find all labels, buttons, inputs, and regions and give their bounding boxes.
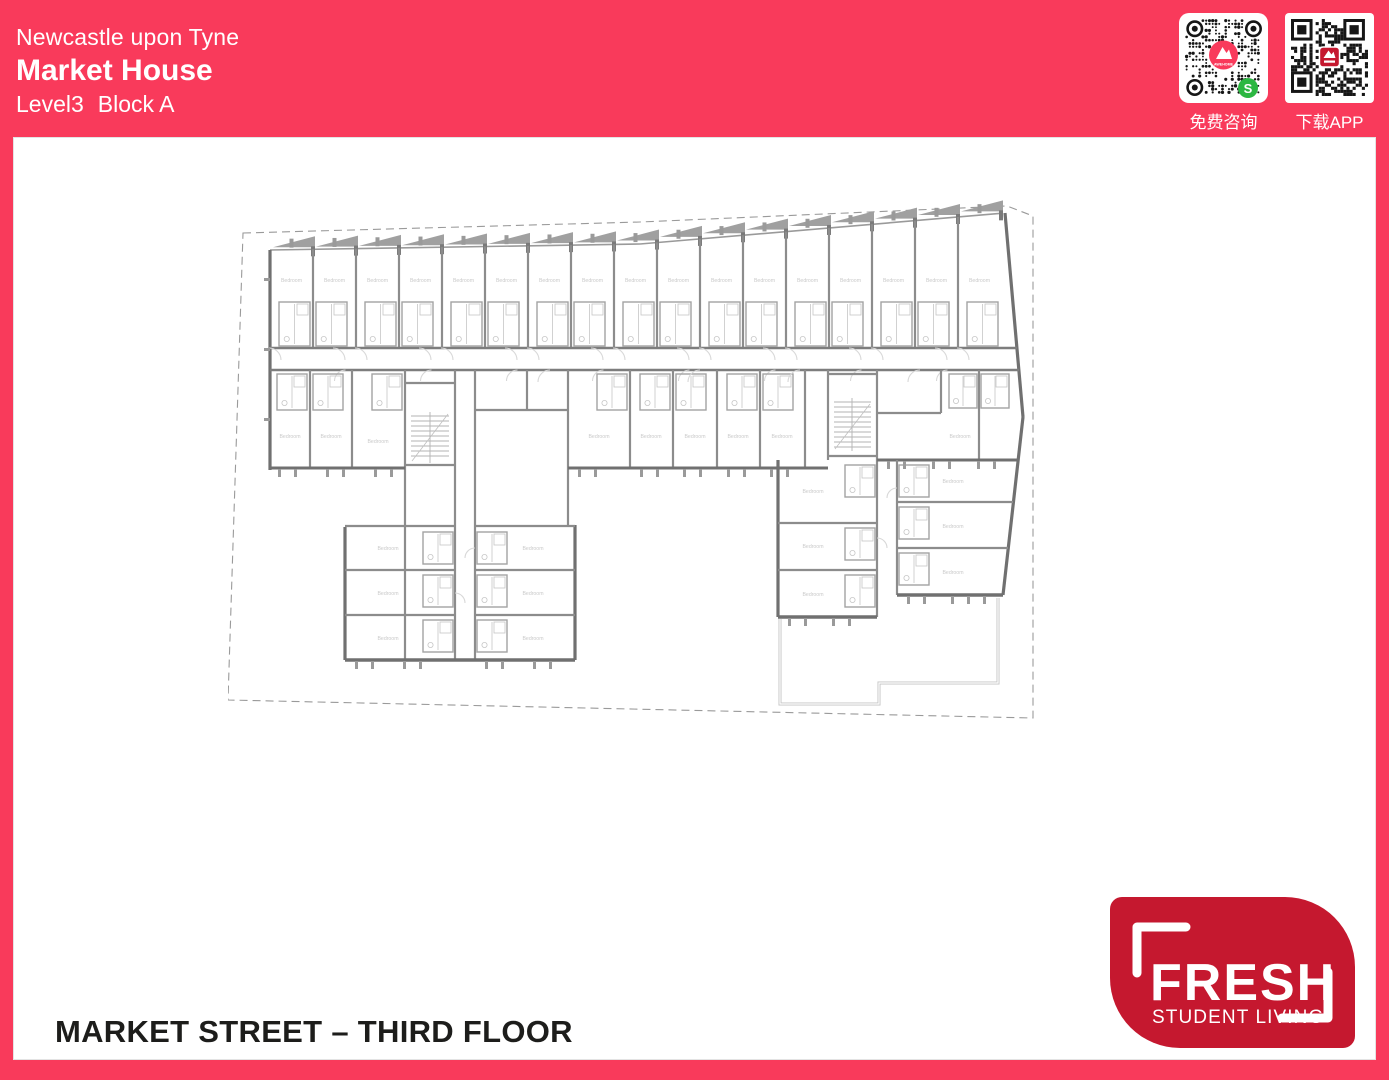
svg-text:Bedroom: Bedroom [883, 278, 904, 284]
svg-text:S: S [1244, 81, 1253, 96]
svg-text:Bedroom: Bedroom [949, 434, 970, 440]
svg-text:Bedroom: Bedroom [711, 278, 732, 284]
svg-text:Bedroom: Bedroom [453, 278, 474, 284]
svg-text:Bedroom: Bedroom [969, 278, 990, 284]
svg-text:Bedroom: Bedroom [926, 278, 947, 284]
floor-plan-drawing: BedroomBedroomBedroomBedroomBedroomBedro… [228, 198, 1040, 730]
building-walls: BedroomBedroomBedroomBedroomBedroomBedro… [264, 200, 1023, 669]
svg-text:Bedroom: Bedroom [942, 479, 963, 485]
city-title: Newcastle upon Tyne [16, 22, 239, 52]
header-titles: Newcastle upon Tyne Market House Level3B… [16, 22, 239, 119]
svg-text:Bedroom: Bedroom [802, 544, 823, 550]
building-title: Market House [16, 52, 239, 89]
svg-text:Bedroom: Bedroom [377, 591, 398, 597]
svg-text:Bedroom: Bedroom [640, 434, 661, 440]
consult-qr-label: 免费咨询 [1179, 108, 1268, 133]
flyer-page: Newcastle upon Tyne Market House Level3B… [0, 0, 1389, 1080]
svg-text:Bedroom: Bedroom [367, 278, 388, 284]
level-title: Level3Block A [16, 89, 239, 119]
svg-text:Bedroom: Bedroom [281, 278, 302, 284]
logo-tagline-text: STUDENT LIVING [1152, 1007, 1324, 1028]
svg-text:Bedroom: Bedroom [727, 434, 748, 440]
svg-text:Bedroom: Bedroom [797, 278, 818, 284]
svg-text:Bedroom: Bedroom [377, 636, 398, 642]
svg-text:Bedroom: Bedroom [324, 278, 345, 284]
svg-text:Bedroom: Bedroom [802, 592, 823, 598]
awehome-badge: AWEHOME [1209, 41, 1238, 70]
floor-plan: BedroomBedroomBedroomBedroomBedroomBedro… [228, 198, 1040, 730]
fresh-logo-art: FRESH STUDENT LIVING [1110, 897, 1355, 1048]
svg-text:Bedroom: Bedroom [942, 570, 963, 576]
svg-text:Bedroom: Bedroom [522, 636, 543, 642]
block-label: Block A [98, 91, 175, 117]
terrace-outline [780, 598, 998, 704]
svg-text:Bedroom: Bedroom [522, 546, 543, 552]
app-qr-label: 下载APP [1285, 108, 1374, 133]
svg-text:Bedroom: Bedroom [522, 591, 543, 597]
app-qr-code [1285, 13, 1374, 103]
svg-text:Bedroom: Bedroom [496, 278, 517, 284]
level-label: Level3 [16, 91, 84, 117]
svg-text:Bedroom: Bedroom [539, 278, 560, 284]
svg-text:Bedroom: Bedroom [771, 434, 792, 440]
svg-text:Bedroom: Bedroom [582, 278, 603, 284]
stair-core-2 [828, 374, 877, 456]
logo-brand-text: FRESH [1150, 954, 1336, 1012]
svg-text:Bedroom: Bedroom [802, 489, 823, 495]
svg-text:Bedroom: Bedroom [754, 278, 775, 284]
fresh-logo: FRESH STUDENT LIVING [1110, 897, 1355, 1048]
svg-text:Bedroom: Bedroom [625, 278, 646, 284]
stair-core-1 [405, 383, 455, 465]
svg-text:Bedroom: Bedroom [588, 434, 609, 440]
svg-text:Bedroom: Bedroom [684, 434, 705, 440]
consult-qr-code: AWEHOMES [1179, 13, 1268, 103]
svg-text:Bedroom: Bedroom [942, 524, 963, 530]
svg-text:Bedroom: Bedroom [410, 278, 431, 284]
svg-text:Bedroom: Bedroom [840, 278, 861, 284]
floor-caption: MARKET STREET – THIRD FLOOR [55, 1014, 573, 1050]
wechat-icon: S [1238, 78, 1258, 98]
svg-text:Bedroom: Bedroom [668, 278, 689, 284]
svg-text:Bedroom: Bedroom [320, 434, 341, 440]
svg-text:AWEHOME: AWEHOME [1214, 63, 1234, 67]
svg-text:Bedroom: Bedroom [367, 439, 388, 445]
svg-text:Bedroom: Bedroom [279, 434, 300, 440]
svg-text:Bedroom: Bedroom [377, 546, 398, 552]
app-badge [1320, 47, 1340, 67]
